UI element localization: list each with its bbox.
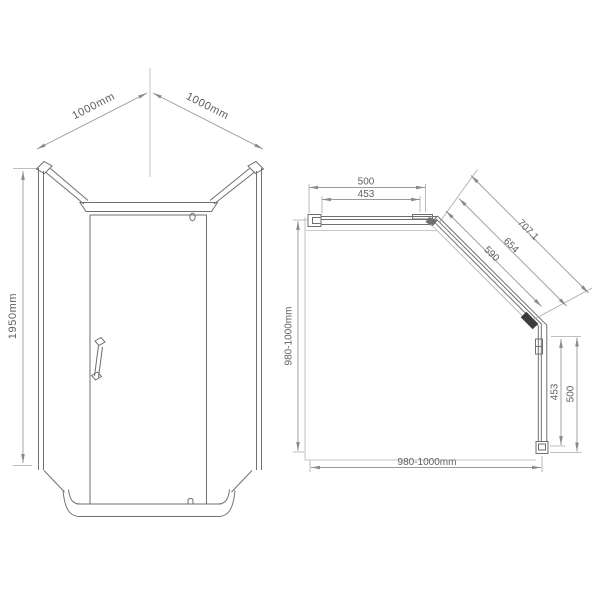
front-height-dim-label: 1950mm: [7, 293, 19, 339]
left-post-lines: [39, 168, 44, 470]
front-view: 1000mm 1000mm 1950mm: [7, 68, 264, 517]
wall-profile-outer-2: [536, 442, 548, 454]
wall-profile-inner: [313, 218, 322, 224]
door-top-pivot-knob: [190, 213, 195, 220]
width-dim-label: 980-1000mm: [398, 457, 457, 468]
shower-tray: [63, 490, 235, 517]
tray-end-curves: [69, 490, 230, 505]
wall-profile-outer: [308, 215, 321, 227]
side-panel-inner-dim-label: 453: [358, 189, 375, 200]
front-width-right-dim-label: 1000mm: [184, 90, 231, 122]
diagonal-inner-dim-label: 590: [481, 244, 501, 264]
right-angled-panel-edges: [210, 169, 254, 205]
left-angled-panel-edges: [46, 169, 88, 205]
front-width-left-dim-label: 1000mm: [70, 90, 117, 122]
right-post-lines: [257, 168, 262, 470]
top-left-wall-profile: [308, 215, 321, 227]
diagonal-faint-line: [431, 224, 529, 322]
top-fixed-panel: [306, 215, 438, 231]
door-top-frame-bar: [80, 203, 218, 212]
handle-bottom-mount: [92, 372, 102, 380]
side-panel-outer-dim-label: 500: [358, 177, 375, 188]
wall-profile-inner-2: [539, 444, 546, 450]
right-panel-outer-dim-label: 500: [566, 385, 577, 402]
door-handle: [92, 338, 106, 381]
plan-view: 500 453 590 654 707.1 453 500 980-1000mm…: [284, 170, 593, 473]
bottom-right-wall-profile: [536, 442, 548, 454]
depth-dim-label: 980-1000mm: [284, 307, 295, 366]
door-bottom-pivot-knob: [188, 499, 193, 505]
diagonal-middle-dim-label: 654: [501, 236, 521, 256]
plan-boundary-lines: [305, 217, 536, 460]
bottom-corner-diagonals: [44, 471, 252, 493]
right-panel-inner-dim-label: 453: [550, 383, 561, 400]
handle-top-mount: [95, 338, 105, 346]
diagonal-outer-dim-label: 707.1: [515, 217, 541, 243]
top-panel-inner-lines: [321, 220, 431, 225]
shower-enclosure-dimension-drawing: 1000mm 1000mm 1950mm: [0, 0, 600, 600]
